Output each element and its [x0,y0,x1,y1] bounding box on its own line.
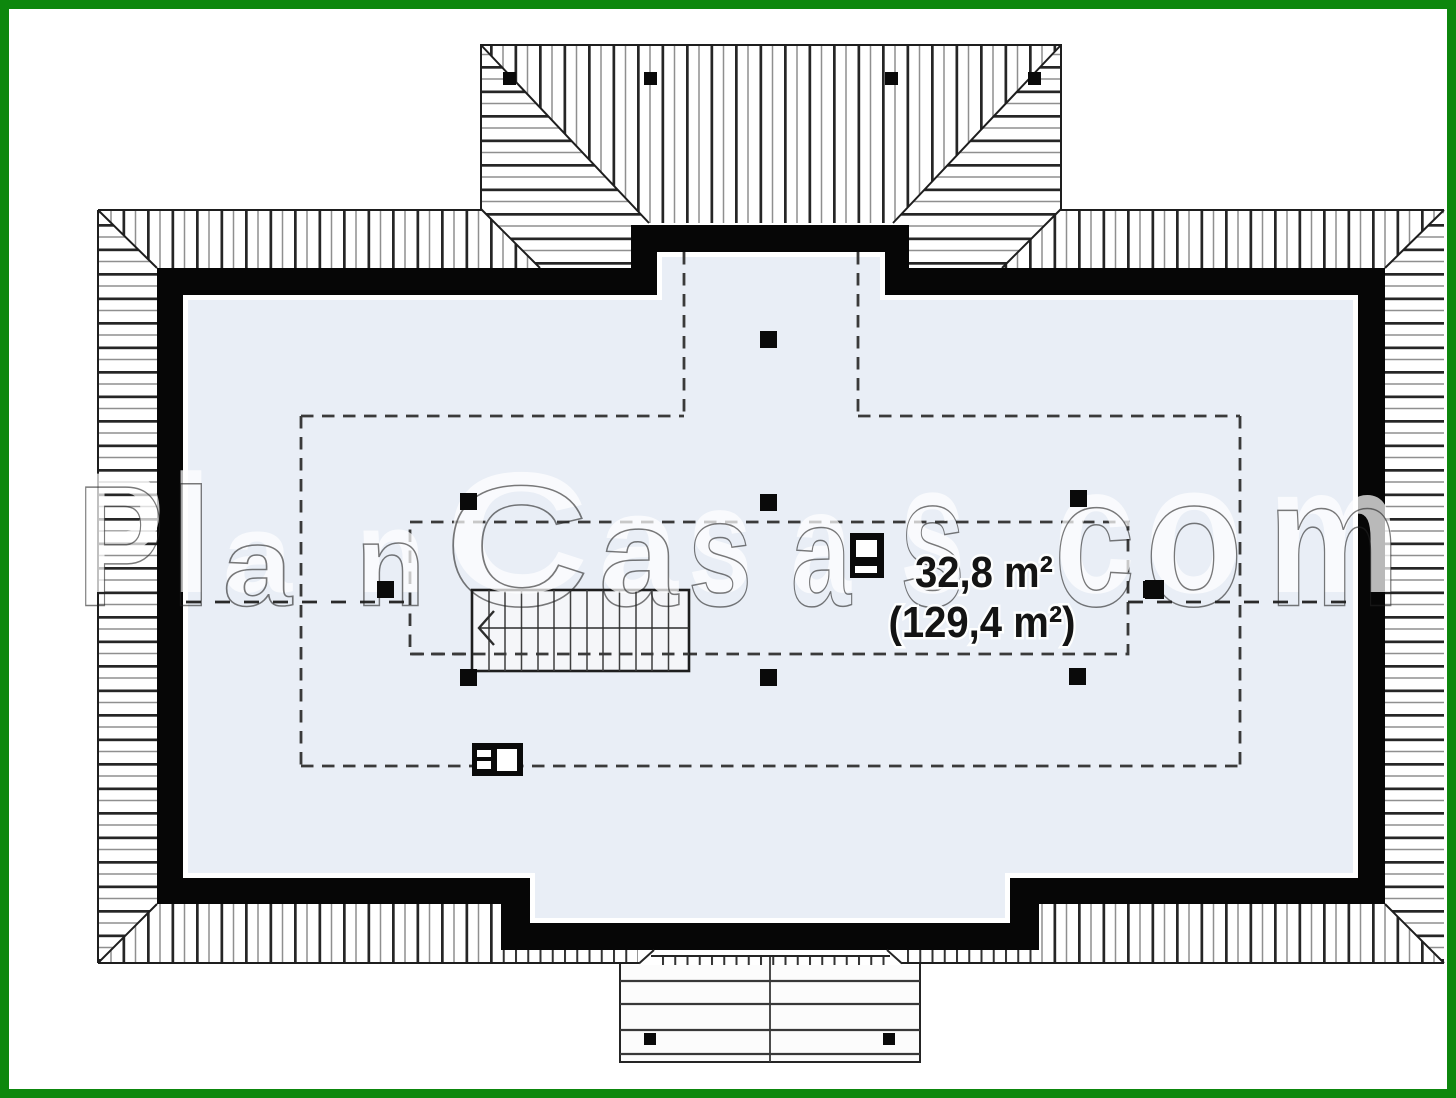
svg-text:n: n [356,501,425,631]
svg-text:(129,4 m²): (129,4 m²) [889,598,1076,647]
svg-text:P: P [77,451,164,643]
svg-text:C: C [445,451,589,643]
svg-text:32,8 m²: 32,8 m² [915,548,1053,597]
svg-text:a: a [791,475,852,637]
svg-text:m: m [1268,444,1400,645]
svg-text:o: o [1145,440,1243,646]
svg-text:s: s [688,469,752,639]
svg-text:a: a [599,478,679,637]
svg-text:l: l [170,454,212,642]
svg-text:a: a [223,505,293,630]
